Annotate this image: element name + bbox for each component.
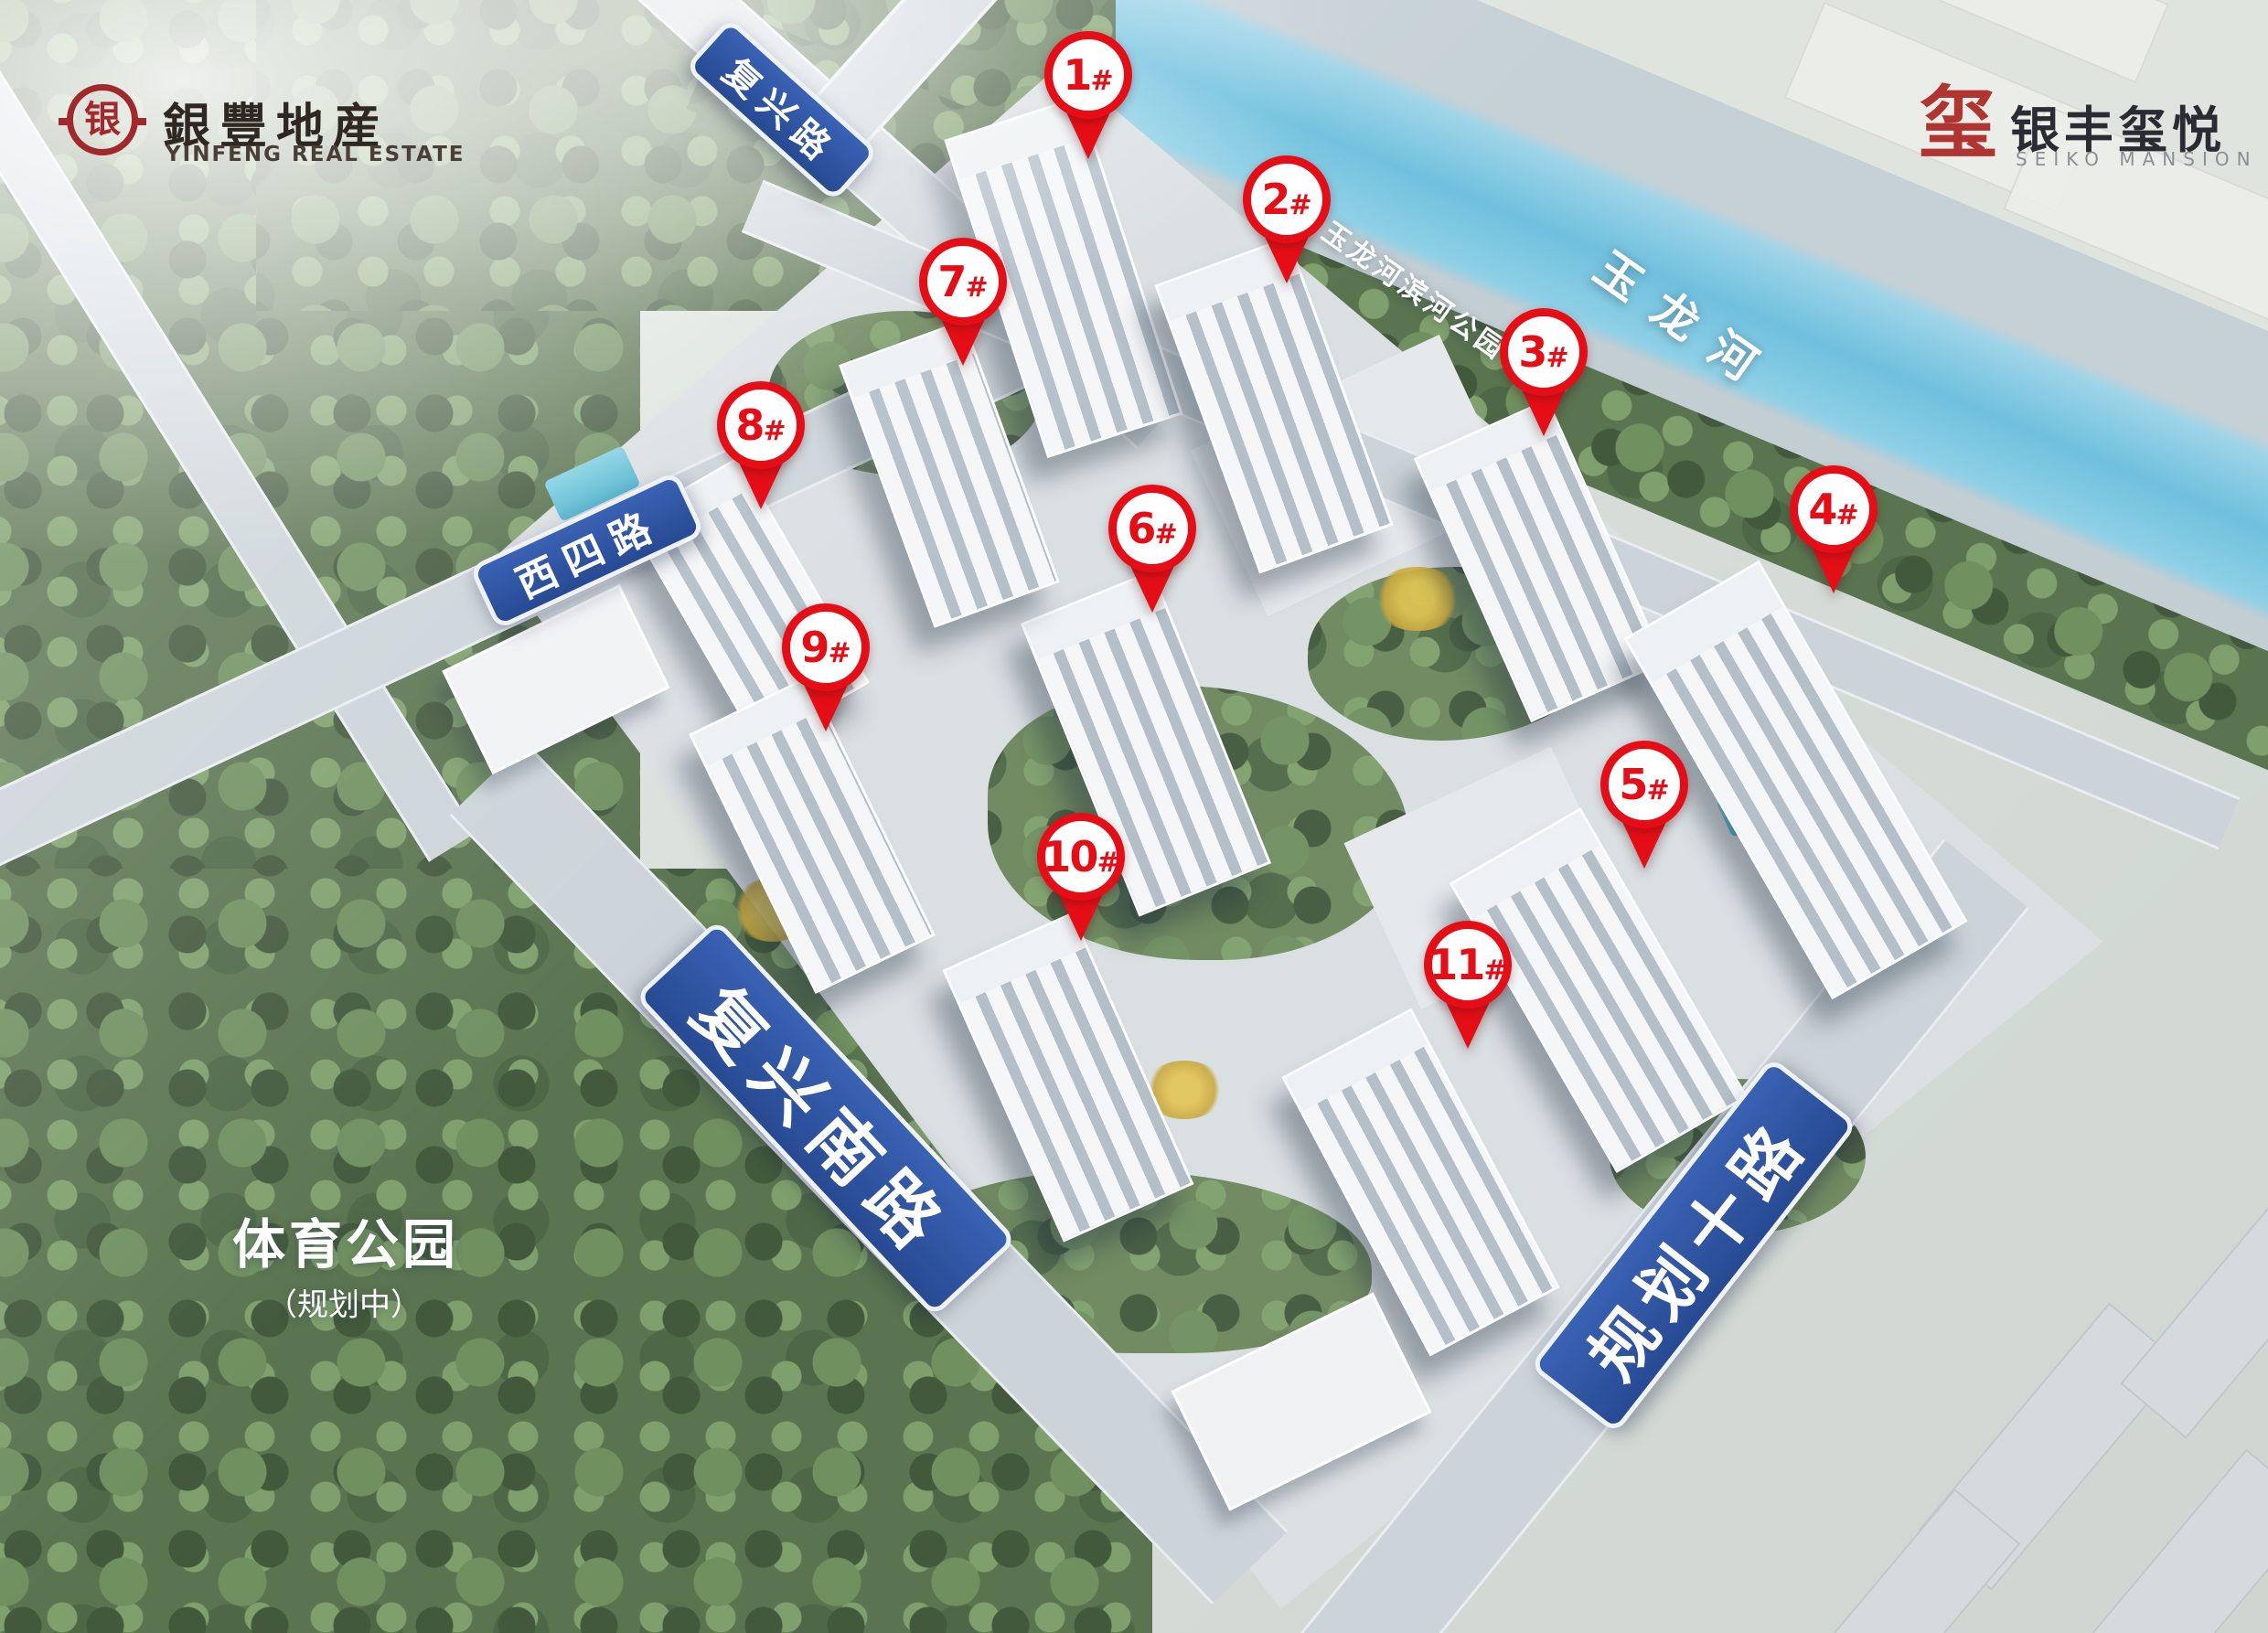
hash-sign: #: [1546, 345, 1568, 372]
neighbor-building: [2120, 1170, 2268, 1438]
yinfeng-seal-icon: 银: [67, 84, 138, 155]
hash-sign: #: [1090, 68, 1113, 95]
sports-park-label: 体育公园: [232, 1201, 459, 1278]
pin-circle: 3 #: [1500, 308, 1588, 396]
seal-glyph: 银: [84, 101, 121, 138]
xiyue-seal-icon: 玺: [1919, 84, 1997, 163]
hash-sign: #: [1154, 521, 1177, 549]
building-number: 4: [1808, 488, 1835, 530]
building-number: 3: [1518, 331, 1546, 373]
building-number: 2: [1261, 178, 1289, 220]
hash-sign: #: [828, 640, 850, 667]
pin-circle: 11 #: [1424, 921, 1512, 1009]
pin-circle: 4 #: [1790, 465, 1878, 553]
pin-circle: 9 #: [782, 603, 870, 691]
hash-sign: #: [1835, 502, 1858, 529]
pin-circle: 10 #: [1037, 813, 1125, 901]
hash-sign: #: [965, 274, 988, 302]
sports-park-status-label: （规划中）: [266, 1280, 422, 1325]
developer-name-en: YINFENG REAL ESTATE: [166, 143, 465, 166]
hash-sign: #: [1097, 849, 1119, 877]
pin-circle: 5 #: [1600, 741, 1688, 828]
pin-circle: 2 #: [1243, 155, 1331, 243]
pin-circle: 8 #: [717, 381, 805, 469]
building-number: 6: [1127, 507, 1154, 550]
building-number: 11: [1428, 944, 1483, 986]
project-name-en: SEIKO MANSION: [2016, 148, 2258, 170]
hash-sign: #: [763, 418, 786, 445]
building-number: 8: [735, 404, 763, 446]
masterplan-rendering: 复兴路 西四路 复兴南路 规划十路 玉龙河 玉龙河滨河公园 体育公园 （规划中）…: [0, 0, 2268, 1633]
building-number: 1: [1063, 54, 1090, 96]
neighbor-building: [2056, 1448, 2268, 1633]
hash-sign: #: [1646, 777, 1669, 805]
autumn-trees: [1372, 567, 1463, 631]
building-number: 10: [1042, 836, 1097, 878]
hash-sign: #: [1289, 192, 1311, 219]
pin-circle: 7 #: [919, 238, 1007, 326]
pin-circle: 1 #: [1044, 31, 1132, 119]
building-number: 5: [1619, 763, 1646, 806]
building-number: 7: [937, 261, 965, 303]
hash-sign: #: [1483, 957, 1506, 985]
building-number: 9: [800, 626, 828, 668]
pin-circle: 6 #: [1108, 485, 1196, 572]
